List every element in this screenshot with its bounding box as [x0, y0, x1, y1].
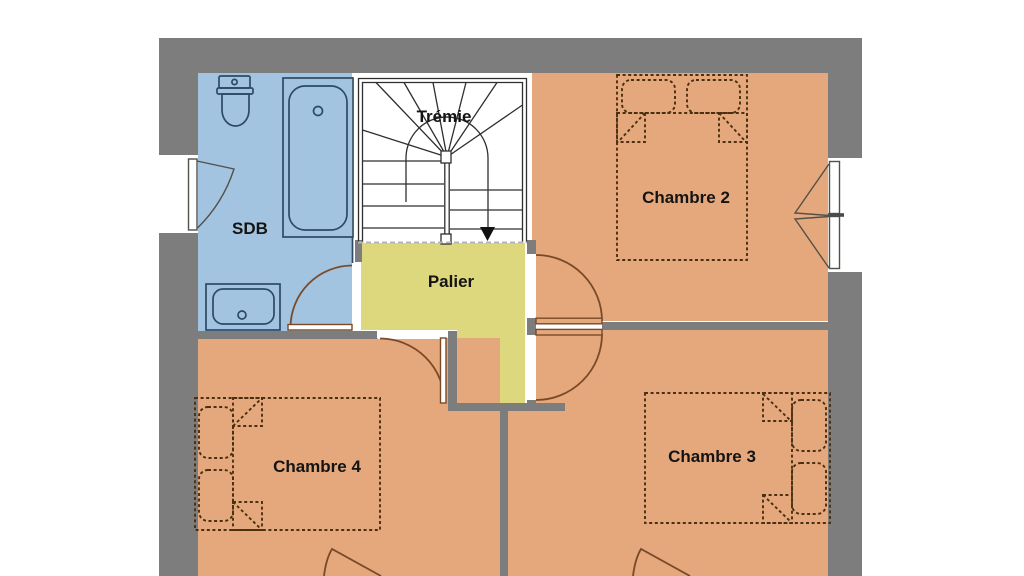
toilet-fixture [217, 76, 253, 126]
bathroom-door [288, 266, 352, 331]
label-bedroom4: Chambre 4 [273, 457, 361, 477]
label-landing: Palier [428, 272, 474, 292]
window-right [795, 162, 844, 269]
staircase [358, 79, 527, 245]
label-bathroom: SDB [232, 219, 268, 239]
floor-plan-linework [0, 0, 1024, 576]
label-bedroom3: Chambre 3 [668, 447, 756, 467]
partial-door-arcs-bottom [324, 549, 690, 576]
bedroom3-door [536, 329, 602, 400]
label-stairwell: Trémie [417, 107, 472, 127]
bed-bedroom2 [617, 75, 747, 260]
sink-fixture [206, 237, 353, 330]
bedroom4-door [380, 338, 446, 403]
label-bedroom2: Chambre 2 [642, 188, 730, 208]
bedroom2-door [536, 255, 602, 324]
window-left [189, 159, 235, 230]
bathtub-fixture [283, 78, 353, 237]
floor-plan: SDB Trémie Palier Chambre 2 Chambre 3 Ch… [0, 0, 1024, 576]
